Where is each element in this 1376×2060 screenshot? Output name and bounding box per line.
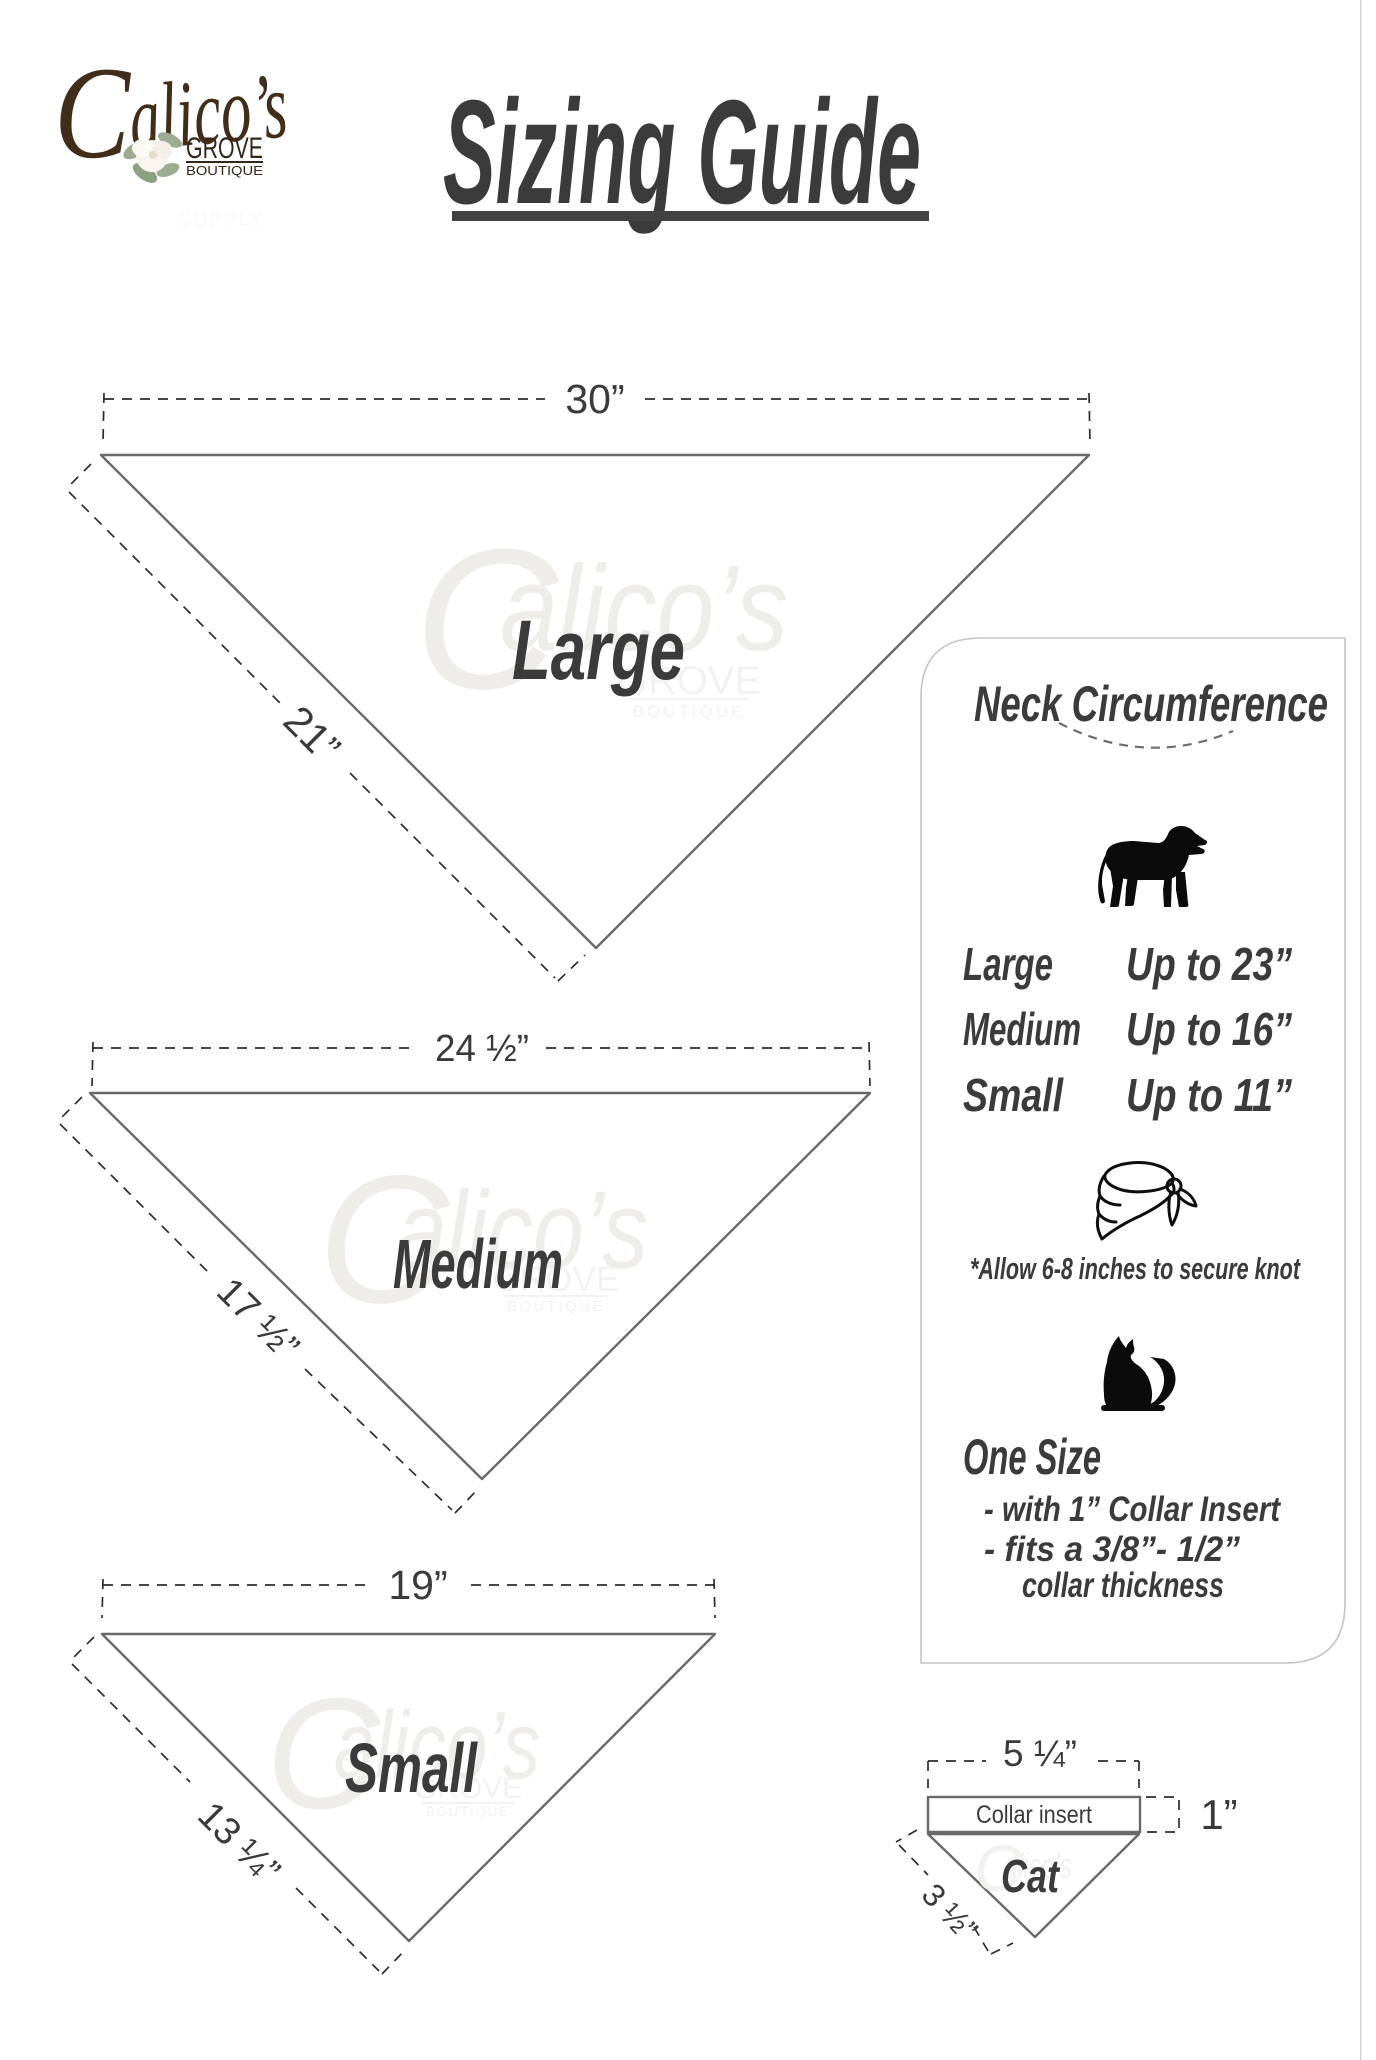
- svg-text:- with 1” Collar Insert: - with 1” Collar Insert: [984, 1490, 1281, 1529]
- svg-text:24 ½”: 24 ½”: [435, 1028, 529, 1070]
- svg-text:Small: Small: [345, 1729, 478, 1807]
- svg-text:Up to 16”: Up to 16”: [1126, 1003, 1292, 1055]
- svg-text:Sizing Guide: Sizing Guide: [443, 70, 921, 235]
- svg-text:Neck Circumference: Neck Circumference: [974, 676, 1328, 732]
- svg-text:BOUTIQUE: BOUTIQUE: [633, 702, 746, 721]
- svg-text:Large: Large: [963, 938, 1053, 990]
- svg-text:1”: 1”: [1200, 1791, 1237, 1838]
- svg-text:Small: Small: [963, 1069, 1064, 1121]
- svg-text:*Allow 6-8 inches to secure kn: *Allow 6-8 inches to secure knot: [970, 1251, 1301, 1286]
- svg-text:GROVE: GROVE: [186, 132, 263, 165]
- svg-text:One Size: One Size: [963, 1429, 1101, 1485]
- svg-text:Large: Large: [512, 603, 685, 697]
- svg-text:30”: 30”: [565, 376, 624, 422]
- svg-text:21”: 21”: [275, 697, 349, 771]
- svg-text:Medium: Medium: [963, 1003, 1081, 1055]
- svg-text:Collar insert: Collar insert: [976, 1801, 1092, 1829]
- svg-text:Cat: Cat: [1001, 1850, 1060, 1902]
- svg-text:collar thickness: collar thickness: [1022, 1566, 1224, 1605]
- svg-text:SUPPLY: SUPPLY: [179, 210, 265, 231]
- svg-text:- fits a 3/8”- 1/2”: - fits a 3/8”- 1/2”: [984, 1530, 1240, 1569]
- svg-text:5 ¼”: 5 ¼”: [1003, 1733, 1077, 1774]
- svg-text:Up to 23”: Up to 23”: [1126, 938, 1292, 990]
- svg-text:Up to 11”: Up to 11”: [1126, 1069, 1292, 1121]
- svg-text:Medium: Medium: [393, 1225, 563, 1303]
- svg-text:C: C: [54, 39, 132, 186]
- svg-text:BOUTIQUE: BOUTIQUE: [186, 163, 263, 178]
- svg-text:19”: 19”: [388, 1562, 447, 1608]
